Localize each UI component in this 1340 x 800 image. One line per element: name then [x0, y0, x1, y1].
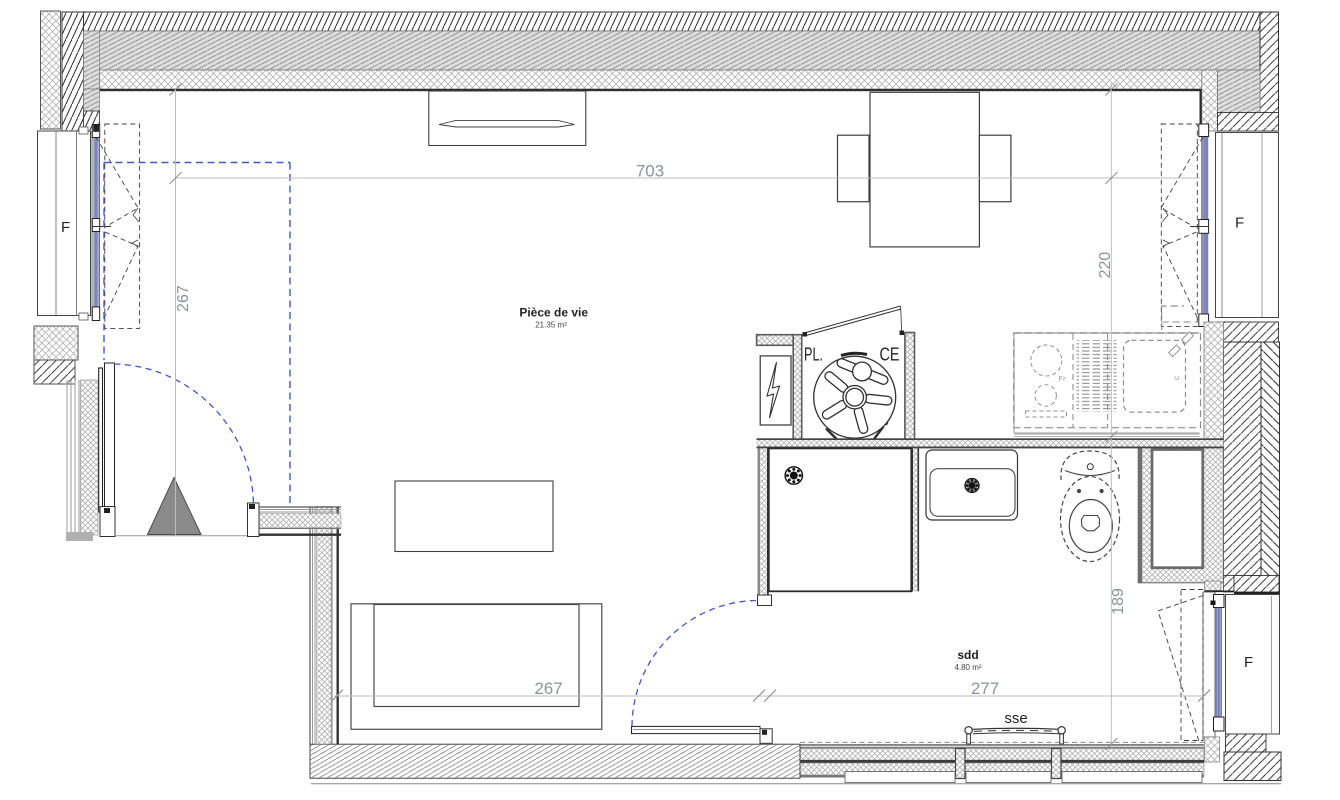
svg-text:703: 703: [636, 162, 664, 181]
svg-text:PL.: PL.: [804, 344, 823, 365]
svg-text:F: F: [1235, 215, 1244, 232]
svg-text:sdd: sdd: [957, 648, 978, 662]
svg-text:F: F: [1244, 654, 1253, 671]
svg-text:Pièce de vie: Pièce de vie: [519, 306, 588, 320]
svg-text:4.80 m²: 4.80 m²: [954, 663, 981, 672]
svg-text:267: 267: [534, 679, 562, 698]
svg-text:Fr: Fr: [1059, 374, 1067, 383]
svg-text:sse: sse: [1004, 710, 1027, 727]
svg-text:277: 277: [971, 679, 999, 698]
svg-text:F: F: [61, 219, 70, 236]
svg-text:189: 189: [1110, 588, 1127, 615]
svg-text:267: 267: [175, 285, 192, 312]
svg-text:c: c: [1172, 376, 1181, 380]
svg-text:CE: CE: [880, 344, 900, 365]
svg-text:21.35 m²: 21.35 m²: [535, 321, 567, 330]
svg-text:220: 220: [1097, 252, 1114, 279]
